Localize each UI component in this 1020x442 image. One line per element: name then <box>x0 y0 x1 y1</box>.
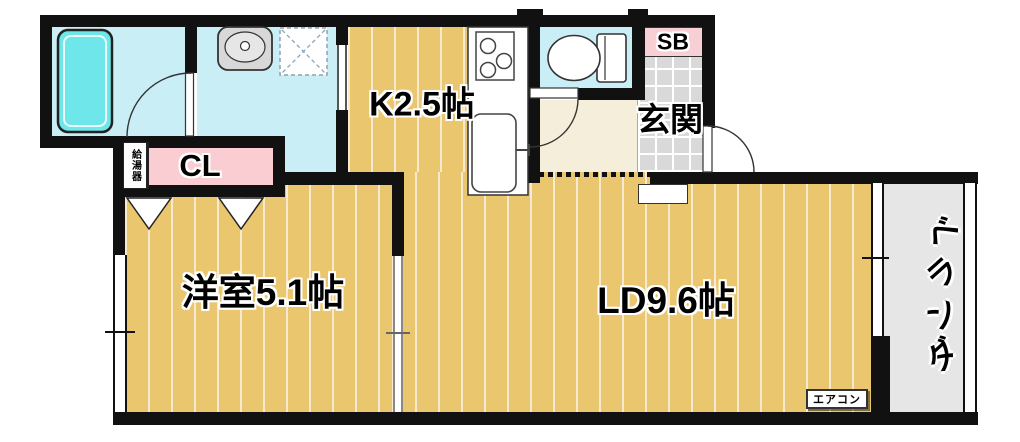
wall-washroom-right-upper <box>336 15 348 45</box>
entrance-door-arc <box>708 126 754 172</box>
wall-bath-bottom <box>40 136 285 148</box>
entrance-step <box>638 184 688 204</box>
hallway-floor <box>540 100 637 172</box>
entrance-door-leaf <box>703 126 712 172</box>
entrance-label: 玄関 <box>637 93 703 141</box>
floor-plan: K2.5帖 LD9.6帖 洋室5.1帖 玄関 CL SB 給湯器 エアコン ベ … <box>0 0 1020 442</box>
veranda-char-4: ダ <box>917 330 967 381</box>
wall-washroom-right-lower <box>336 110 348 172</box>
hall-ld-opening-line <box>530 172 650 177</box>
wall-bottom <box>113 412 978 425</box>
water-heater-box: 給湯器 <box>123 142 149 189</box>
bathroom-floor <box>52 27 185 136</box>
toilet-room-floor <box>540 27 632 88</box>
veranda-label: ベ ラ ン ダ <box>922 212 962 376</box>
wall-bath-washroom-divider <box>185 15 197 73</box>
wall-veranda-divider-lower <box>871 336 890 413</box>
sliding-window-veranda <box>871 183 884 336</box>
wall-west-top-right <box>281 172 403 185</box>
veranda-outer-rail <box>963 183 977 412</box>
wall-entrance-right <box>702 15 715 128</box>
shoe-box-label: SB <box>657 29 689 56</box>
aircon-label-box: エアコン <box>806 389 868 409</box>
aircon-label: エアコン <box>813 391 861 407</box>
sliding-door-washroom <box>337 45 347 110</box>
water-heater-label: 給湯器 <box>128 149 143 182</box>
closet-label: CL <box>179 148 220 184</box>
living-dining-label: LD9.6帖 <box>597 270 735 324</box>
wall-ld-top <box>650 172 978 184</box>
western-room-label: 洋室5.1帖 <box>182 262 344 316</box>
bath-door-leaf <box>186 73 194 136</box>
kitchen-label: K2.5帖 <box>369 77 475 126</box>
window-west-wall <box>113 255 127 412</box>
wall-toilet-bottom <box>578 88 645 100</box>
wall-bath-left <box>40 15 52 148</box>
sliding-door-west-ld <box>393 256 403 412</box>
wall-top <box>40 15 715 27</box>
wall-kitchen-right <box>528 15 540 183</box>
wall-partition-west-ld <box>392 172 404 256</box>
